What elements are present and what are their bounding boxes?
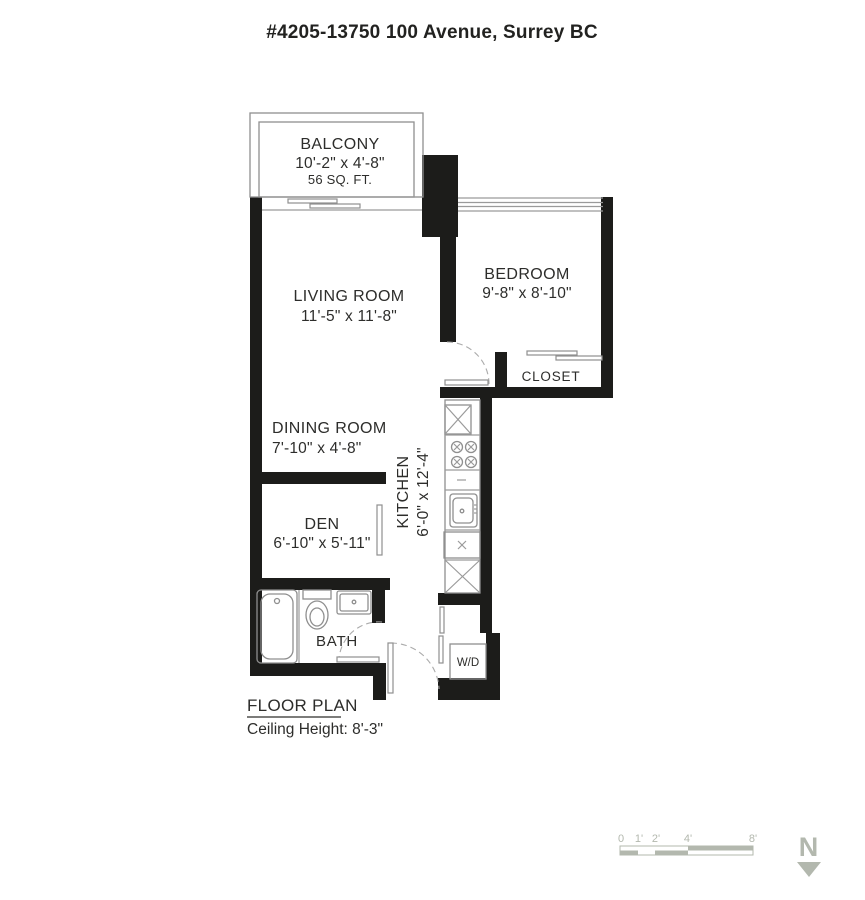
wall-entry-bottom-right: [438, 678, 500, 700]
wall-den-top: [250, 472, 386, 484]
entry-door: [388, 643, 439, 693]
sink-icon: [450, 494, 477, 527]
bedroom-label: BEDROOM: [484, 266, 569, 283]
kitchen-dims: 6'-0" x 12'-4": [415, 447, 432, 537]
bath-fixtures: [257, 590, 371, 663]
page-title: #4205-13750 100 Avenue, Surrey BC: [266, 22, 598, 43]
dining-room-dims: 7'-10" x 4'-8": [272, 440, 362, 457]
scale-tick-4: 4': [684, 833, 692, 845]
scale-bar: 0 1' 2' 4' 8': [618, 833, 757, 855]
kitchen-counter: [444, 400, 480, 593]
wall-bath-top: [250, 578, 390, 590]
living-room-label: LIVING ROOM: [293, 288, 404, 305]
wall-laundry-right: [486, 633, 500, 683]
balcony-area: 56 SQ. FT.: [308, 172, 372, 187]
wall-bath-bottom: [250, 663, 378, 676]
wall-left: [250, 197, 262, 676]
scale-tick-1: 1': [635, 833, 643, 845]
kitchen-label: KITCHEN: [395, 455, 412, 528]
north-label: N: [799, 832, 820, 862]
wall-bath-right: [372, 578, 385, 623]
vanity-sink-icon: [337, 591, 371, 614]
north-arrow-icon: [797, 862, 821, 877]
cabinet-icon: [445, 560, 480, 593]
scale-tick-8: 8': [749, 833, 757, 845]
bath-label: BATH: [316, 633, 358, 650]
linen-door: [440, 607, 444, 633]
wall-kitchen-bottom: [438, 593, 492, 605]
dishwasher-icon: [444, 530, 480, 560]
laundry-label: W/D: [457, 657, 479, 669]
floor-plan-page: #4205-13750 100 Avenue, Surrey BC: [0, 0, 865, 900]
scale-tick-2: 2': [652, 833, 660, 845]
bathtub-icon: [257, 590, 297, 663]
closet-sliding-door: [527, 351, 602, 360]
closet-label: CLOSET: [522, 369, 581, 384]
footer: FLOOR PLAN Ceiling Height: 8'-3": [247, 696, 383, 738]
laundry-area: W/D: [439, 607, 486, 679]
floor-plan-label: FLOOR PLAN: [247, 696, 358, 715]
wall-right: [601, 197, 613, 398]
bedroom-door: [445, 342, 489, 385]
balcony-label: BALCONY: [300, 136, 379, 153]
scale-tick-0: 0: [618, 833, 624, 845]
floor-plan-drawing: #4205-13750 100 Avenue, Surrey BC: [0, 0, 865, 900]
living-room-dims: 11'-5" x 11'-8": [301, 308, 397, 325]
toilet-icon: [303, 590, 331, 629]
den-dims: 6'-10" x 5'-11": [273, 535, 370, 552]
wall-living-bedroom-divider: [440, 237, 456, 342]
balcony-dims: 10'-2" x 4'-8": [295, 155, 385, 172]
wall-closet-divider: [495, 352, 507, 392]
dining-room-label: DINING ROOM: [272, 420, 387, 437]
north-arrow: N: [797, 832, 821, 877]
wall-column: [422, 155, 458, 237]
den-door: [377, 505, 382, 555]
wall-entry-step: [373, 663, 386, 700]
bedroom-window: [458, 198, 603, 211]
fridge-icon: [445, 405, 480, 435]
den-label: DEN: [305, 516, 340, 533]
cooktop-icon: [445, 442, 480, 471]
drawer-icon: [445, 480, 480, 490]
ceiling-height-label: Ceiling Height: 8'-3": [247, 721, 383, 738]
balcony-sliding-door: [262, 197, 422, 210]
bedroom-dims: 9'-8" x 8'-10": [482, 285, 572, 302]
wall-bedroom-bottom: [440, 387, 613, 398]
linen-door: [439, 636, 443, 663]
